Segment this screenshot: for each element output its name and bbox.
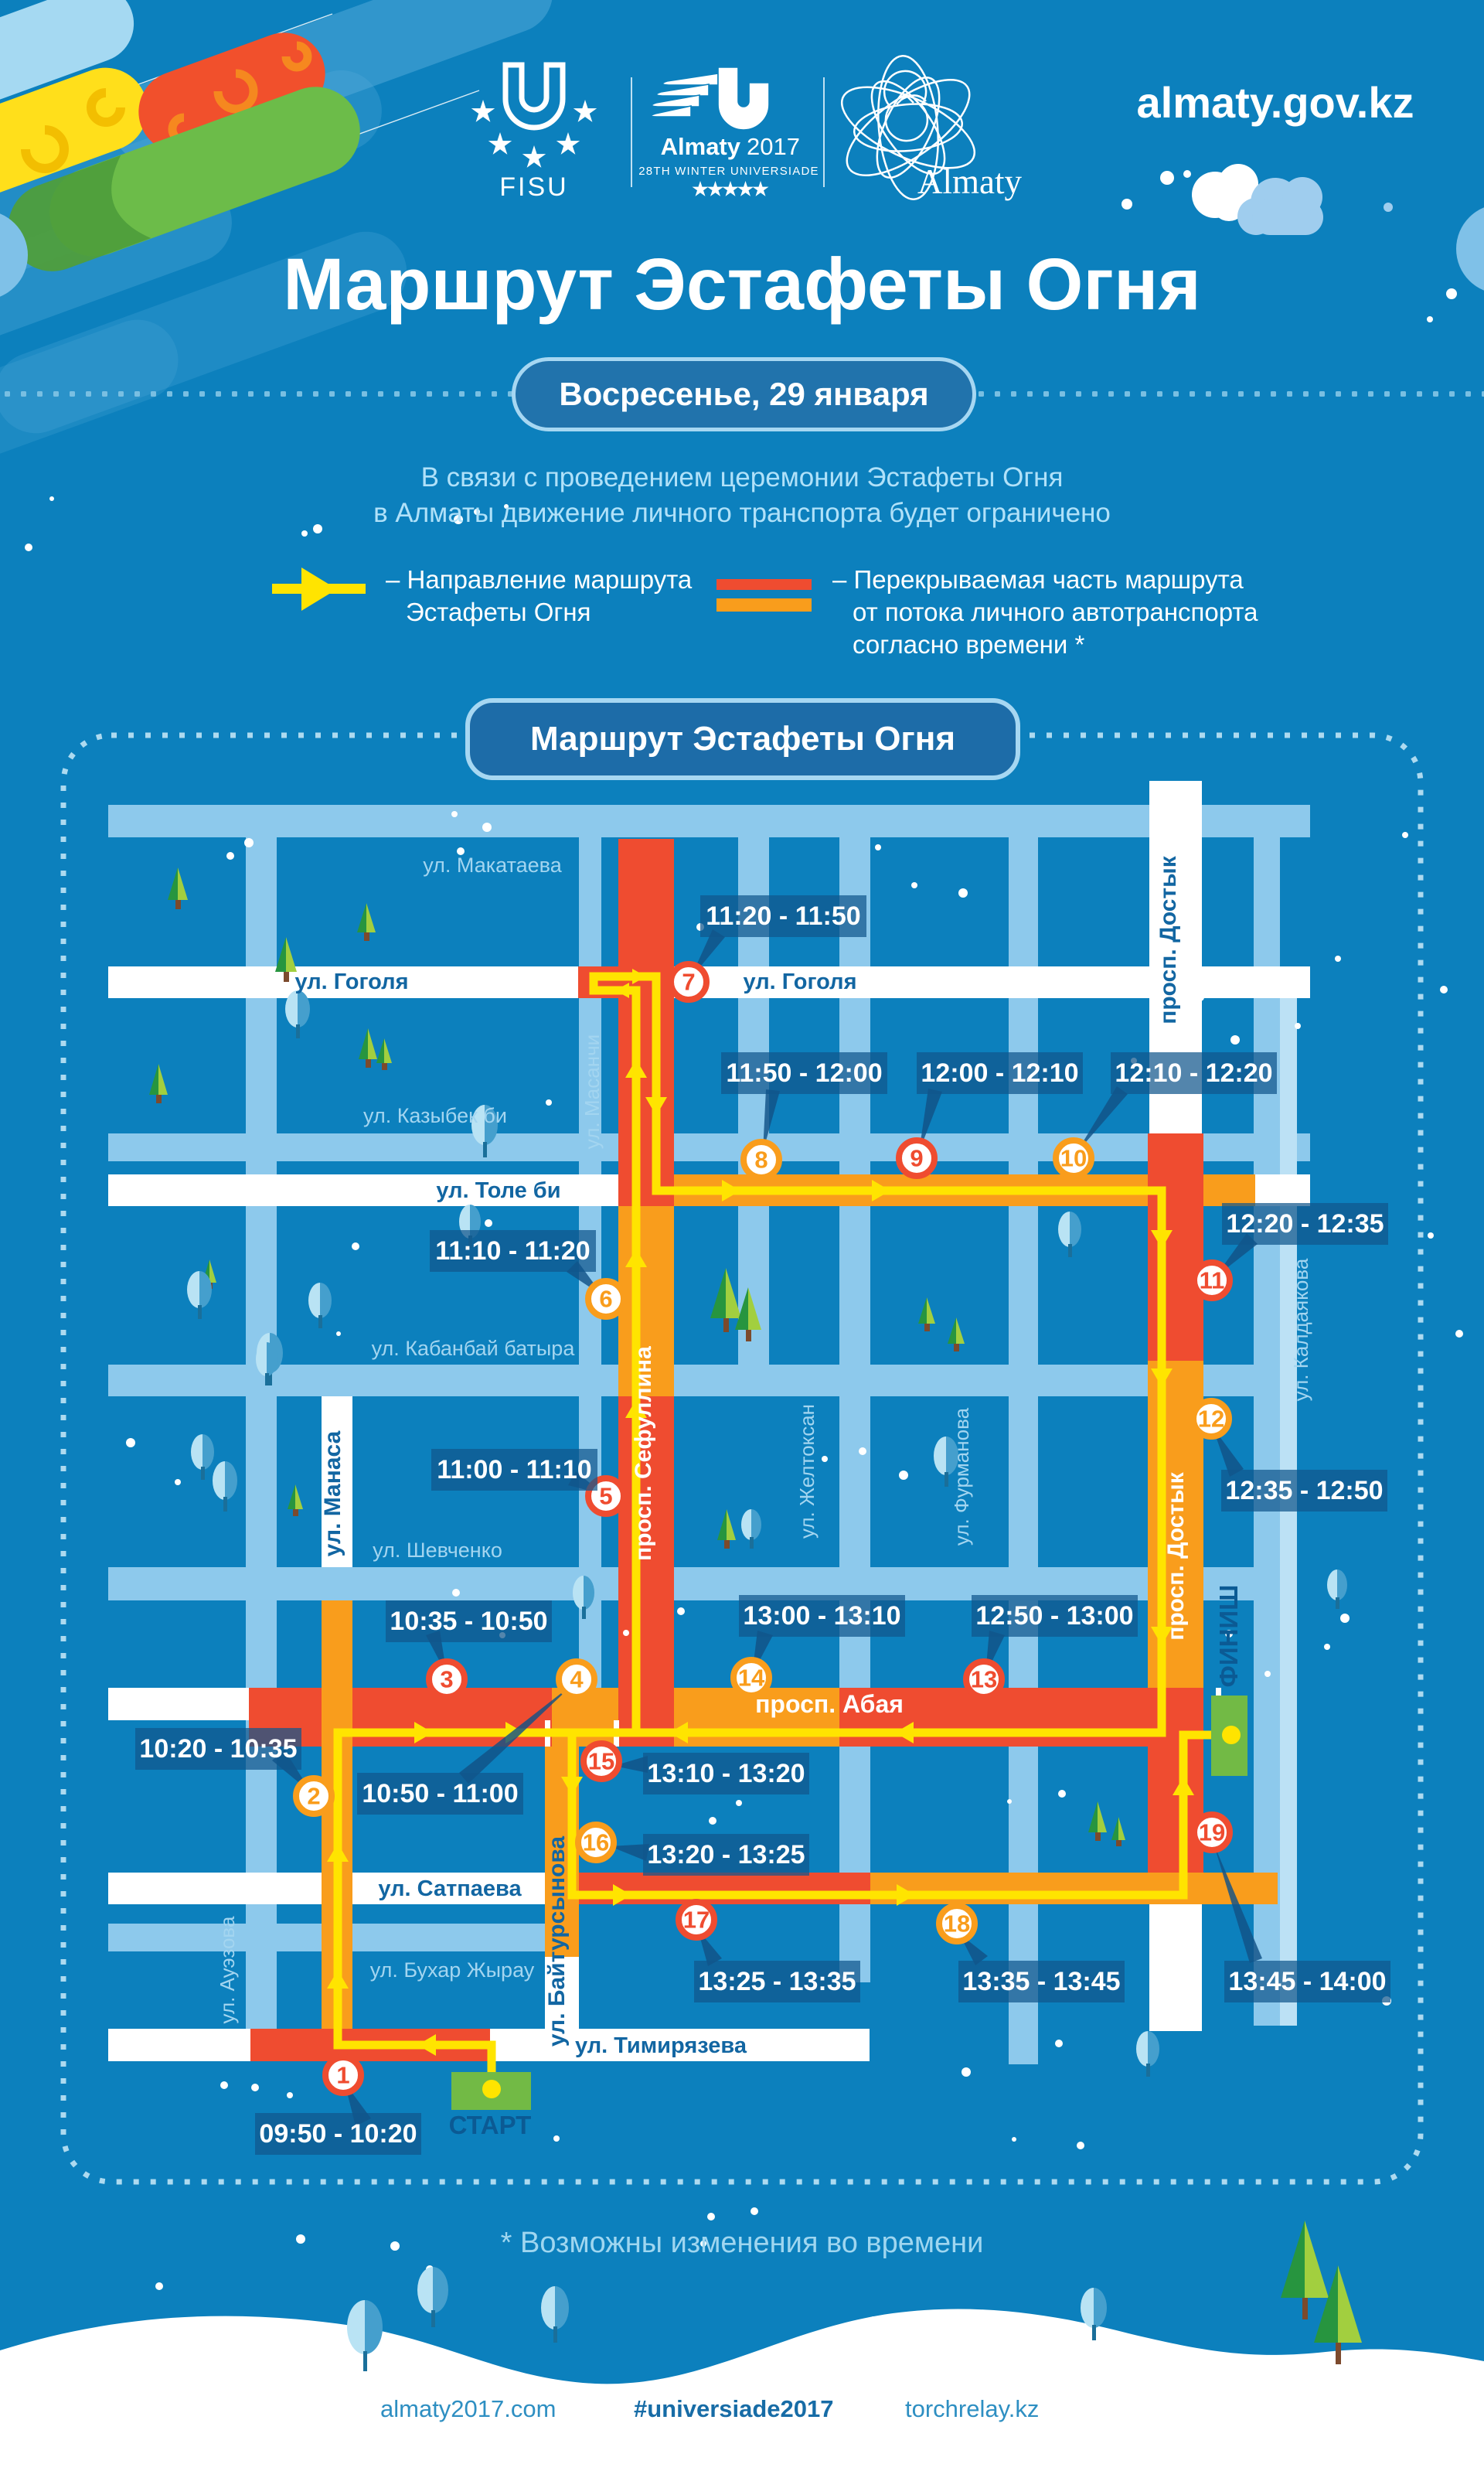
- svg-text:ФИНИШ: ФИНИШ: [1214, 1585, 1243, 1688]
- svg-text:ул. Бухар Жырау: ул. Бухар Жырау: [370, 1958, 535, 1982]
- svg-text:17: 17: [683, 1907, 710, 1934]
- svg-text:FISU: FISU: [499, 172, 568, 202]
- svg-text:13: 13: [971, 1666, 997, 1693]
- svg-text:ул. Казыбек би: ул. Казыбек би: [363, 1104, 507, 1127]
- svg-text:ул. Желтоксан: ул. Желтоксан: [795, 1404, 819, 1539]
- svg-text:ул. Масанчи: ул. Масанчи: [580, 1034, 604, 1149]
- svg-text:Almaty: Almaty: [917, 162, 1022, 201]
- svg-text:ул. Тимирязева: ул. Тимирязева: [575, 2033, 747, 2058]
- svg-text:ул. Шевченко: ул. Шевченко: [373, 1539, 502, 1562]
- svg-text:2: 2: [307, 1783, 320, 1810]
- svg-text:11: 11: [1200, 1267, 1225, 1294]
- svg-text:28TH WINTER UNIVERSIADE: 28TH WINTER UNIVERSIADE: [638, 165, 819, 178]
- svg-text:ул. Манаса: ул. Манаса: [320, 1430, 345, 1556]
- svg-text:9: 9: [910, 1145, 923, 1172]
- svg-text:almaty.gov.kz: almaty.gov.kz: [1137, 78, 1414, 127]
- svg-text:19: 19: [1199, 1819, 1225, 1846]
- svg-text:2017: 2017: [747, 133, 800, 160]
- svg-text:18: 18: [944, 1910, 970, 1938]
- svg-text:ул. Гоголя: ул. Гоголя: [743, 970, 856, 994]
- svg-text:ул. Ауэзова: ул. Ауэзова: [216, 1916, 239, 2023]
- svg-text:просп. Сефуллина: просп. Сефуллина: [631, 1346, 656, 1561]
- svg-text:ул. Байтурсынова: ул. Байтурсынова: [544, 1836, 570, 2047]
- svg-text:ул. Фурманова: ул. Фурманова: [950, 1407, 973, 1546]
- svg-text:3: 3: [440, 1666, 453, 1693]
- svg-text:16: 16: [583, 1829, 609, 1856]
- svg-text:ул. Калдаякова: ул. Калдаякова: [1289, 1258, 1312, 1401]
- svg-text:просп. Абая: просп. Абая: [755, 1690, 904, 1718]
- svg-text:Almaty: Almaty: [661, 133, 741, 160]
- svg-text:10: 10: [1060, 1145, 1087, 1172]
- svg-text:ул. Сатпаева: ул. Сатпаева: [378, 1876, 522, 1901]
- svg-text:ул. Кабанбай батыра: ул. Кабанбай батыра: [372, 1337, 576, 1360]
- svg-text:просп. Достык: просп. Достык: [1156, 855, 1181, 1024]
- svg-text:СТАРТ: СТАРТ: [449, 2111, 532, 2139]
- svg-text:12: 12: [1198, 1406, 1224, 1433]
- svg-text:ул. Макатаева: ул. Макатаева: [423, 854, 562, 877]
- svg-text:4: 4: [570, 1666, 584, 1693]
- svg-text:просп. Достык: просп. Достык: [1163, 1471, 1189, 1641]
- svg-text:ул. Толе би: ул. Толе би: [436, 1178, 560, 1203]
- svg-text:15: 15: [588, 1748, 614, 1775]
- svg-text:5: 5: [599, 1483, 612, 1510]
- svg-text:7: 7: [682, 969, 695, 996]
- svg-text:14: 14: [738, 1665, 765, 1692]
- svg-text:6: 6: [599, 1286, 612, 1313]
- svg-text:8: 8: [754, 1147, 768, 1174]
- svg-text:1: 1: [336, 2062, 349, 2089]
- svg-text:ул. Гоголя: ул. Гоголя: [294, 970, 408, 994]
